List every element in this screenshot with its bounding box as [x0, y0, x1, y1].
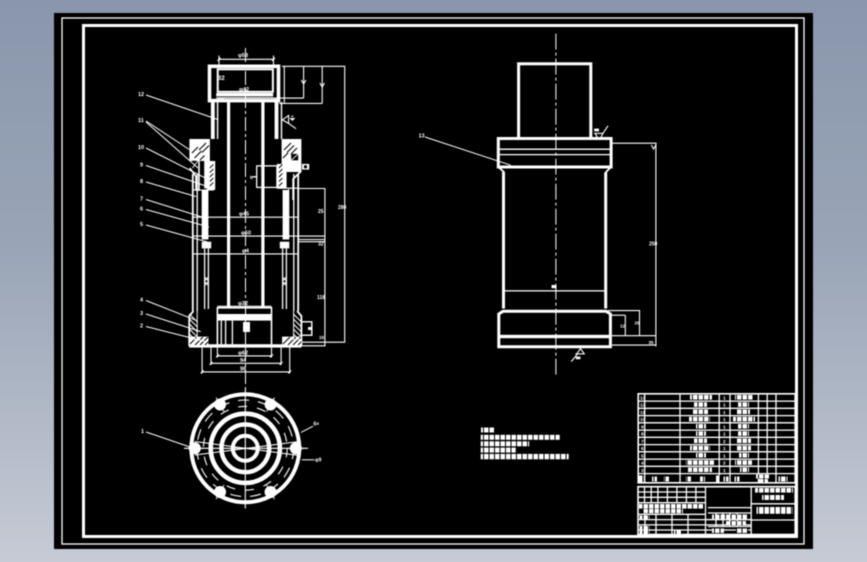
svg-text:1: 1: [723, 432, 726, 438]
svg-text:3: 3: [140, 311, 143, 317]
svg-text:φ42: φ42: [239, 87, 249, 93]
svg-text:118: 118: [317, 295, 325, 301]
svg-text:10: 10: [640, 417, 646, 423]
svg-text:35: 35: [649, 340, 655, 345]
svg-text:M6: M6: [218, 98, 225, 103]
svg-text:9: 9: [641, 425, 644, 431]
svg-text:1: 1: [723, 396, 726, 402]
svg-text:1: 1: [723, 454, 726, 460]
svg-text:1: 1: [723, 410, 726, 416]
svg-text:10: 10: [138, 145, 144, 151]
svg-text:11: 11: [640, 410, 645, 416]
svg-text:25: 25: [635, 321, 641, 326]
svg-text:1: 1: [723, 468, 726, 474]
svg-text:5: 5: [140, 222, 143, 228]
svg-text:4: 4: [641, 461, 644, 467]
svg-text:φ9: φ9: [315, 458, 322, 464]
svg-text:5: 5: [641, 454, 644, 460]
svg-text:φ32: φ32: [238, 301, 248, 307]
svg-text:12: 12: [620, 324, 626, 329]
svg-text:φ4: φ4: [242, 249, 250, 255]
svg-text:2: 2: [140, 324, 143, 330]
svg-text:φ50: φ50: [241, 231, 251, 237]
svg-text:1: 1: [723, 403, 726, 409]
svg-text:13: 13: [640, 396, 646, 402]
svg-text:1: 1: [723, 417, 726, 423]
svg-text:2: 2: [723, 461, 726, 467]
svg-text:13: 13: [419, 134, 425, 140]
svg-text:7: 7: [140, 197, 143, 203]
svg-text:25: 25: [318, 209, 324, 215]
svg-text:2: 2: [723, 439, 726, 445]
svg-text:280: 280: [338, 205, 347, 211]
svg-text:8: 8: [641, 432, 644, 438]
svg-text:6: 6: [140, 207, 143, 213]
svg-text:98: 98: [240, 367, 246, 373]
svg-text:φ62: φ62: [238, 351, 248, 357]
svg-text:b: b: [250, 175, 253, 180]
svg-text:250: 250: [649, 242, 658, 248]
svg-text:12: 12: [640, 403, 646, 409]
svg-text:32: 32: [318, 242, 324, 248]
svg-text:15: 15: [319, 335, 325, 340]
svg-text:1: 1: [141, 429, 144, 435]
svg-text:32: 32: [218, 75, 226, 82]
svg-text:8: 8: [140, 179, 143, 185]
svg-text:φ45: φ45: [239, 212, 249, 218]
svg-text:6: 6: [641, 446, 644, 452]
svg-text:1: 1: [723, 446, 726, 452]
svg-text:94: 94: [240, 358, 247, 364]
svg-text:7: 7: [641, 439, 644, 445]
svg-text:12: 12: [138, 92, 144, 98]
svg-text:11: 11: [138, 118, 144, 124]
svg-text:1: 1: [723, 425, 726, 431]
svg-text:φ58: φ58: [238, 53, 248, 59]
svg-text:9: 9: [140, 163, 143, 169]
svg-text:3: 3: [641, 468, 644, 474]
svg-text:6×: 6×: [314, 422, 320, 428]
